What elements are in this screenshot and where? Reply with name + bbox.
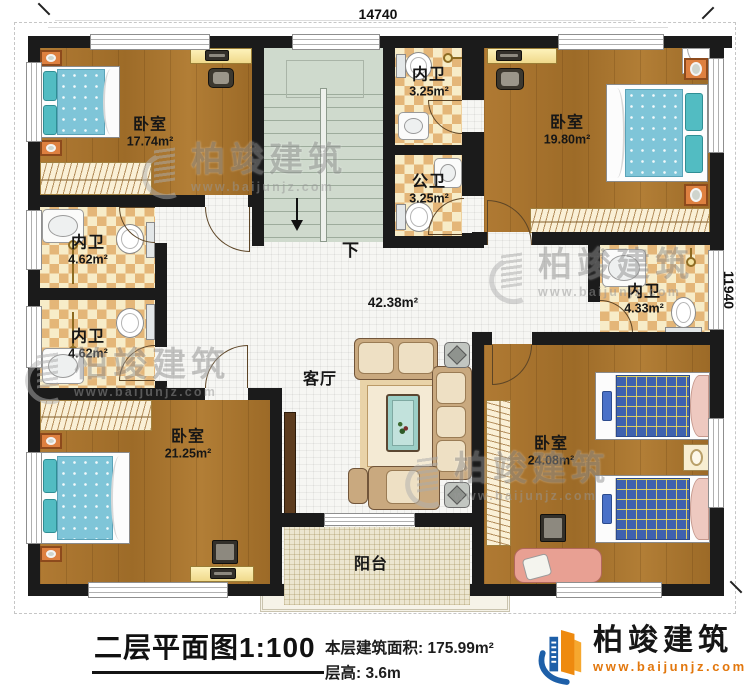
room-label-living: 客厅: [303, 371, 337, 389]
wall-segment: [28, 195, 205, 207]
window: [708, 58, 724, 153]
room-area: 4.33m²: [624, 302, 664, 316]
wall-segment: [462, 36, 484, 100]
room-area: 42.38m²: [368, 295, 418, 311]
room-area: 3.25m²: [409, 85, 449, 99]
tv-cabinet: [284, 412, 296, 516]
room-label-balcony: 阳台: [354, 556, 388, 574]
window: [292, 34, 380, 50]
room-area: 3.25m²: [409, 192, 449, 206]
window: [88, 582, 228, 598]
room-name: 内卫: [68, 235, 108, 253]
wall-segment: [270, 388, 282, 584]
wall-segment: [252, 36, 264, 246]
room-name: 内卫: [624, 284, 664, 302]
pillow: [602, 494, 612, 524]
pillow: [43, 71, 57, 101]
room-area: 17.74m²: [127, 135, 174, 149]
pillow: [685, 93, 703, 131]
wall-segment: [383, 145, 484, 155]
double-bed: [40, 452, 130, 544]
computer: [212, 540, 238, 564]
desk-lamp: [210, 568, 236, 579]
stair-direction-label: 下: [342, 241, 360, 261]
sofa-cushion: [436, 440, 466, 472]
floor-plan-sheet: 卧室 17.74m² 内卫 3.25m² 公卫 3.25m² 卧室 19.80m…: [0, 0, 750, 697]
wall-balcony-stub-right: [415, 513, 472, 527]
nightstand: [40, 50, 62, 66]
sofa-cushion: [436, 406, 466, 438]
towel-bar: [452, 57, 462, 59]
side-table: [444, 482, 470, 508]
desk-chair: [496, 68, 524, 90]
floor-height-text: 层高: 3.6m: [325, 662, 494, 687]
wall-segment: [588, 245, 600, 302]
double-bed: [606, 84, 708, 182]
window: [26, 62, 42, 142]
sofa-cushion: [398, 342, 434, 374]
plaid-blanket: [616, 478, 690, 540]
eave-line: [55, 20, 635, 21]
pillow: [43, 499, 57, 533]
desk-chair: [208, 68, 234, 88]
room-label-bathroom-public: 公卫 3.25m²: [409, 174, 449, 207]
brand-website: www.baijunjz.com: [593, 659, 747, 674]
eave-line: [48, 27, 668, 28]
room-area: 4.62m²: [68, 253, 108, 267]
brand-block: 柏竣建筑 www.baijunjz.com: [536, 625, 747, 687]
sofa-cushion: [358, 342, 394, 374]
room-area: 4.62m²: [68, 347, 108, 361]
wall-balcony-stub-left: [282, 513, 324, 527]
toilet-tank: [146, 304, 155, 340]
nightstand: [684, 58, 708, 80]
room-label-bedroom-top-right: 卧室 19.80m²: [544, 115, 591, 148]
window: [26, 306, 42, 368]
nightstand: [40, 140, 62, 156]
wall-segment: [40, 288, 167, 300]
wall-segment: [472, 332, 484, 584]
mattress: [625, 89, 683, 177]
mattress: [57, 456, 113, 540]
room-label-bathroom-top: 内卫 3.25m²: [409, 67, 449, 100]
window: [708, 418, 724, 508]
wardrobe: [486, 400, 511, 546]
wall-segment: [472, 232, 487, 245]
towel-bar: [690, 248, 692, 258]
double-bed: [40, 66, 120, 138]
floor-info: 本层建筑面积: 175.99m² 层高: 3.6m: [325, 637, 494, 687]
plaid-blanket: [616, 375, 690, 437]
page-title: 二层平面图1:100: [92, 626, 324, 674]
room-name: 内卫: [68, 329, 108, 347]
coffee-table: [386, 394, 420, 452]
stair-direction-arrowhead: [291, 220, 303, 231]
room-label-bathroom-left-2: 内卫 4.62m²: [68, 329, 108, 362]
window: [558, 34, 664, 50]
nightstand: [684, 184, 708, 206]
nightstand: [40, 433, 62, 449]
wall-segment: [462, 132, 484, 196]
room-area: 19.80m²: [544, 133, 591, 147]
brand-name: 柏竣建筑: [593, 625, 747, 657]
wall-segment: [28, 388, 205, 400]
sink: [398, 112, 429, 140]
stair-direction-arrow: [296, 198, 298, 222]
room-name: 阳台: [354, 556, 388, 574]
sofa-cushion: [386, 470, 420, 504]
computer: [205, 50, 229, 61]
wardrobe: [40, 400, 152, 431]
computer: [540, 514, 566, 542]
wardrobe: [40, 162, 152, 195]
wall-segment: [383, 36, 395, 246]
pillow: [43, 105, 57, 135]
blanket-fold: [103, 69, 119, 135]
blanket-fold: [111, 456, 128, 540]
room-name: 客厅: [303, 371, 337, 389]
window: [26, 210, 42, 270]
balcony-sliding-door: [324, 513, 415, 526]
corner-tick: [702, 7, 715, 20]
room-name: 卧室: [528, 436, 575, 454]
single-bed: [595, 475, 710, 543]
floor-area-text: 本层建筑面积: 175.99m²: [325, 637, 494, 662]
room-area: 24.08m²: [528, 454, 575, 468]
toilet-icon: [671, 297, 696, 328]
wall-segment: [155, 195, 167, 207]
dimension-top: 14740: [359, 6, 398, 22]
wall-segment: [248, 195, 264, 207]
blanket-fold: [690, 478, 709, 540]
pillow: [43, 459, 57, 493]
room-area: 21.25m²: [165, 447, 212, 461]
room-name: 公卫: [409, 174, 449, 192]
stair-handrail: [320, 88, 327, 242]
room-name: 卧室: [165, 429, 212, 447]
wardrobe: [530, 208, 710, 233]
window: [556, 582, 662, 598]
dimension-right: 11940: [721, 271, 737, 309]
wall-segment: [383, 236, 484, 248]
computer: [496, 50, 522, 61]
corner-tick: [38, 3, 51, 16]
nightstand: [683, 444, 710, 471]
room-label-bathroom-right: 内卫 4.33m²: [624, 284, 664, 317]
blanket-fold: [690, 375, 709, 437]
pillow: [602, 391, 612, 421]
room-label-bedroom-bottom-right: 卧室 24.08m²: [528, 436, 575, 469]
room-label-bedroom-bottom-left: 卧室 21.25m²: [165, 429, 212, 462]
room-label-bedroom-top-left: 卧室 17.74m²: [127, 117, 174, 150]
sofa-cushion: [436, 372, 466, 404]
stair-direction-text: 下: [342, 241, 360, 261]
window: [90, 34, 210, 50]
room-label-bathroom-left-1: 内卫 4.62m²: [68, 235, 108, 268]
toilet-icon: [116, 308, 144, 338]
sink: [602, 249, 646, 287]
room-name: 卧室: [544, 115, 591, 133]
window: [26, 452, 42, 544]
room-name: 内卫: [409, 67, 449, 85]
blanket-fold: [609, 88, 625, 178]
towel-ring: [686, 257, 696, 267]
nightstand: [40, 546, 62, 562]
brand-text: 柏竣建筑 www.baijunjz.com: [593, 625, 747, 674]
pillow: [685, 135, 703, 173]
room-name: 卧室: [127, 117, 174, 135]
mattress: [57, 69, 105, 135]
wall-segment: [532, 332, 710, 345]
room-label-living-area: 42.38m²: [368, 295, 418, 311]
single-bed: [595, 372, 710, 440]
armchair: [348, 468, 368, 504]
side-table: [444, 342, 470, 368]
wall-segment: [532, 232, 710, 245]
brand-logo-icon: [536, 625, 586, 687]
